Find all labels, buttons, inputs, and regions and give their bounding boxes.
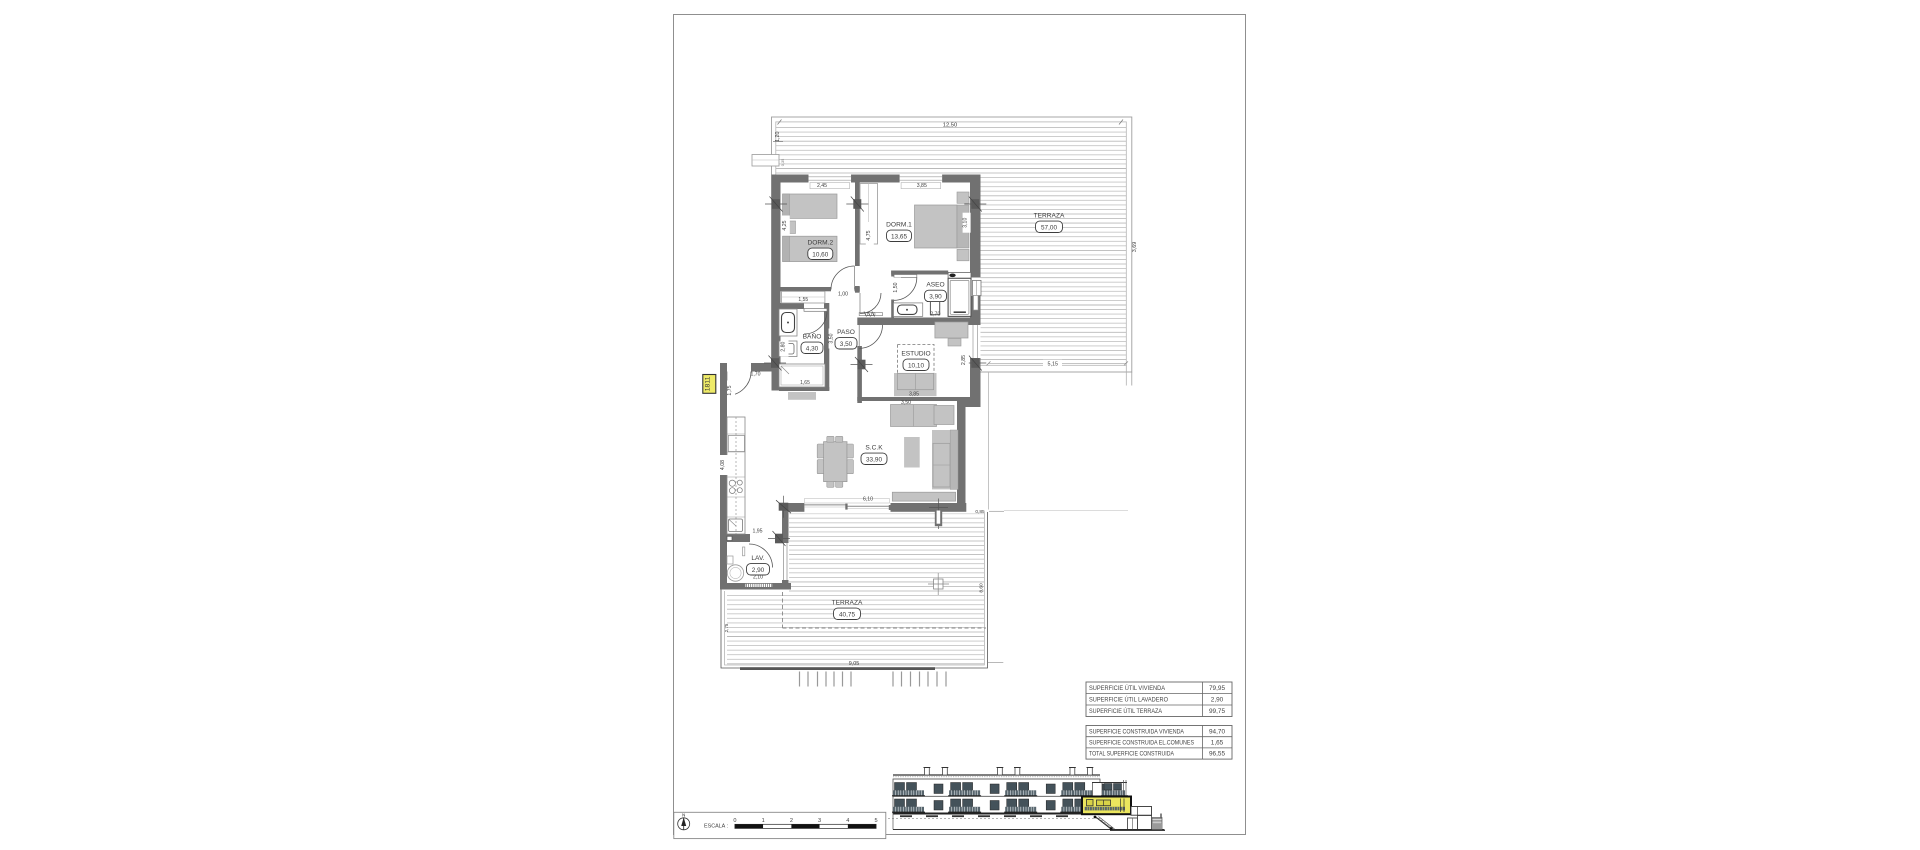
svg-text:3,85: 3,85 — [909, 391, 919, 397]
svg-text:1,10: 1,10 — [867, 311, 876, 316]
svg-text:PASO: PASO — [837, 329, 855, 336]
svg-text:2,45: 2,45 — [817, 183, 827, 189]
svg-text:3,90: 3,90 — [929, 293, 942, 300]
svg-text:2,70: 2,70 — [930, 312, 940, 318]
svg-text:DORM.1: DORM.1 — [886, 222, 912, 229]
svg-text:LAV.: LAV. — [751, 555, 764, 562]
svg-text:TERRAZA: TERRAZA — [832, 600, 863, 607]
svg-text:12,50: 12,50 — [943, 123, 958, 129]
svg-text:2,80: 2,80 — [781, 342, 787, 352]
svg-text:S.C.K: S.C.K — [865, 445, 883, 452]
svg-text:TERRAZA: TERRAZA — [1034, 213, 1065, 220]
svg-text:ESTUDIO: ESTUDIO — [901, 351, 930, 358]
svg-text:3,50: 3,50 — [829, 333, 835, 343]
svg-text:3,50: 3,50 — [901, 400, 911, 406]
svg-text:SUPERFICIE CONSTRUIDA EL.COMUN: SUPERFICIE CONSTRUIDA EL.COMUNES — [1089, 740, 1194, 747]
svg-text:10,10: 10,10 — [908, 362, 924, 369]
svg-text:13,65: 13,65 — [891, 233, 907, 240]
svg-text:5,15: 5,15 — [1048, 361, 1059, 367]
svg-text:9,05: 9,05 — [849, 661, 860, 667]
svg-text:33,90: 33,90 — [866, 456, 882, 463]
svg-text:4,25: 4,25 — [782, 220, 788, 230]
svg-text:1,95: 1,95 — [752, 529, 762, 535]
svg-text:1,50: 1,50 — [893, 282, 899, 292]
svg-text:0,85: 0,85 — [975, 509, 985, 515]
svg-text:1: 1 — [762, 818, 765, 824]
svg-text:SUPERFICIE ÚTIL TERRAZA: SUPERFICIE ÚTIL TERRAZA — [1089, 706, 1163, 715]
svg-text:DORM.2: DORM.2 — [807, 240, 833, 247]
svg-text:3,10: 3,10 — [963, 218, 969, 228]
svg-text:2,75: 2,75 — [724, 623, 729, 632]
svg-text:ASEO: ASEO — [926, 282, 944, 289]
svg-text:1,70: 1,70 — [750, 372, 760, 378]
svg-text:2,90: 2,90 — [1211, 697, 1224, 704]
svg-text:6,10: 6,10 — [863, 497, 873, 503]
svg-text:SUPERFICIE ÚTIL VIVIENDA: SUPERFICIE ÚTIL VIVIENDA — [1089, 683, 1166, 692]
svg-text:SUPERFICIE ÚTIL LAVADERO: SUPERFICIE ÚTIL LAVADERO — [1089, 695, 1168, 704]
svg-text:3: 3 — [818, 818, 821, 824]
svg-text:2: 2 — [790, 818, 793, 824]
svg-text:BAÑO: BAÑO — [803, 332, 822, 341]
svg-text:96,55: 96,55 — [1209, 751, 1225, 758]
svg-text:TOTAL SUPERFICIE CONSTRUIDA: TOTAL SUPERFICIE CONSTRUIDA — [1089, 751, 1175, 758]
svg-text:3,69: 3,69 — [1132, 242, 1138, 253]
svg-text:8,60: 8,60 — [979, 583, 985, 593]
svg-text:1,20: 1,20 — [775, 131, 781, 142]
svg-text:57,00: 57,00 — [1041, 224, 1057, 231]
svg-text:79,95: 79,95 — [1209, 685, 1225, 692]
svg-text:94,70: 94,70 — [1209, 728, 1225, 735]
svg-text:4: 4 — [846, 818, 849, 824]
svg-text:1,00: 1,00 — [838, 292, 848, 298]
svg-text:N: N — [682, 812, 685, 817]
svg-text:3,50: 3,50 — [840, 341, 853, 348]
svg-text:40,75: 40,75 — [839, 611, 855, 618]
svg-text:5: 5 — [875, 818, 878, 824]
svg-text:1,65: 1,65 — [800, 380, 810, 386]
svg-text:0: 0 — [733, 818, 736, 824]
svg-text:SUPERFICIE CONSTRUIDA VIVIENDA: SUPERFICIE CONSTRUIDA VIVIENDA — [1089, 728, 1185, 735]
svg-text:4,75: 4,75 — [866, 230, 872, 240]
svg-text:1,55: 1,55 — [798, 297, 808, 303]
svg-text:4,30: 4,30 — [806, 345, 819, 352]
svg-text:2,90: 2,90 — [752, 567, 765, 574]
svg-text:1,65: 1,65 — [1211, 740, 1224, 747]
svg-text:4,08: 4,08 — [720, 460, 726, 470]
svg-text:1,75: 1,75 — [727, 385, 733, 395]
svg-text:ESCALA :: ESCALA : — [704, 824, 728, 830]
svg-text:0,35: 0,35 — [780, 159, 785, 167]
svg-text:10,60: 10,60 — [812, 251, 828, 258]
svg-text:1811: 1811 — [705, 376, 712, 391]
svg-text:99,75: 99,75 — [1209, 708, 1225, 715]
svg-text:2,85: 2,85 — [961, 355, 967, 365]
svg-text:3,85: 3,85 — [917, 183, 927, 189]
